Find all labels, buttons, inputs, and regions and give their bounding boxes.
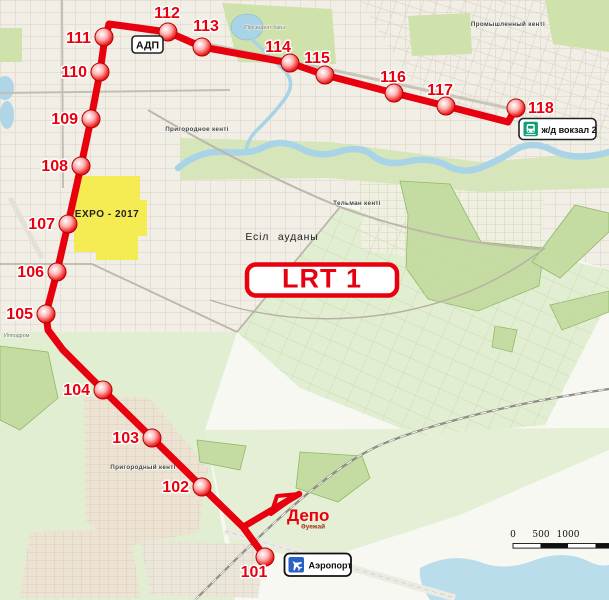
station-108: 108 — [41, 157, 90, 175]
railway-station-badge-label: ж/д вокзал 2 — [541, 125, 597, 135]
station-marker — [95, 28, 113, 46]
station-marker — [72, 157, 90, 175]
station-marker — [48, 263, 66, 281]
station-marker — [385, 84, 403, 102]
lrt-route-badge-label: LRT 1 — [282, 264, 362, 294]
station-label: 118 — [528, 100, 554, 117]
station-label: 113 — [193, 18, 219, 35]
station-104: 104 — [63, 381, 112, 399]
lrt-route-badge: LRT 1 — [247, 264, 397, 296]
station-label: 109 — [51, 111, 78, 128]
district-hippodrome: Ипподром — [4, 333, 30, 339]
map-canvas: EXPO - 2017 Есіл ауданы Тельман кенті Пр… — [0, 0, 609, 600]
scale-bar-segment — [541, 544, 569, 549]
expo-label: EXPO - 2017 — [75, 209, 139, 220]
station-marker — [193, 478, 211, 496]
station-marker — [37, 305, 55, 323]
station-label: 112 — [154, 5, 180, 22]
station-label: 104 — [63, 382, 90, 399]
station-label: 105 — [6, 306, 33, 323]
station-label: 108 — [41, 158, 68, 175]
station-label: 101 — [241, 564, 268, 581]
station-marker — [94, 381, 112, 399]
station-label: 114 — [265, 39, 291, 56]
district-prigorodny: Пригородный кенті — [110, 463, 175, 471]
station-label: 107 — [28, 216, 55, 233]
station-label: 111 — [66, 30, 91, 47]
lrt-route-map: EXPO - 2017 Есіл ауданы Тельман кенті Пр… — [0, 0, 609, 600]
station-marker — [91, 63, 109, 81]
district-president-park: Президент бағы — [245, 25, 285, 31]
scale-tick-1000: 1000 — [557, 530, 580, 540]
station-label: 106 — [17, 264, 44, 281]
station-marker — [281, 54, 299, 72]
district-prigorodnoye: Пригородное кенті — [165, 125, 229, 133]
depot-sublabel: Әуежай — [301, 523, 325, 531]
station-label: 115 — [304, 50, 330, 67]
railway-station-badge: ж/д вокзал 2 — [519, 119, 597, 140]
station-label: 117 — [427, 82, 453, 99]
airplane-icon — [288, 557, 304, 573]
station-label: 102 — [162, 479, 189, 496]
station-label: 103 — [112, 430, 139, 447]
station-106: 106 — [17, 263, 66, 281]
station-marker — [82, 110, 100, 128]
station-marker — [316, 66, 334, 84]
station-marker — [437, 97, 455, 115]
station-label: 110 — [61, 64, 87, 81]
station-109: 109 — [51, 110, 100, 128]
station-label: 116 — [380, 69, 406, 86]
station-marker — [143, 429, 161, 447]
scale-tick-0: 0 — [510, 530, 516, 540]
station-107: 107 — [28, 215, 77, 233]
station-110: 110 — [61, 63, 109, 81]
adp-badge-label: АДП — [136, 40, 159, 52]
station-marker — [59, 215, 77, 233]
adp-badge: АДП — [132, 36, 163, 53]
airport-badge-label: Аэропорт — [309, 561, 353, 571]
station-102: 102 — [162, 478, 211, 496]
depot-label: Депо — [287, 506, 329, 525]
station-103: 103 — [112, 429, 161, 447]
scale-tick-500: 500 — [532, 530, 549, 540]
station-marker — [507, 99, 525, 117]
station-111: 111 — [66, 28, 113, 47]
district-esil: Есіл ауданы — [245, 231, 318, 243]
district-promyshlenny: Промышленный кенті — [471, 20, 545, 28]
scale-bar-segment — [596, 544, 609, 549]
district-telman: Тельман кенті — [333, 199, 381, 207]
station-marker — [193, 38, 211, 56]
airport-badge: Аэропорт — [285, 554, 353, 577]
station-105: 105 — [6, 305, 55, 323]
station-118: 118 — [507, 99, 554, 117]
train-icon — [524, 122, 538, 136]
